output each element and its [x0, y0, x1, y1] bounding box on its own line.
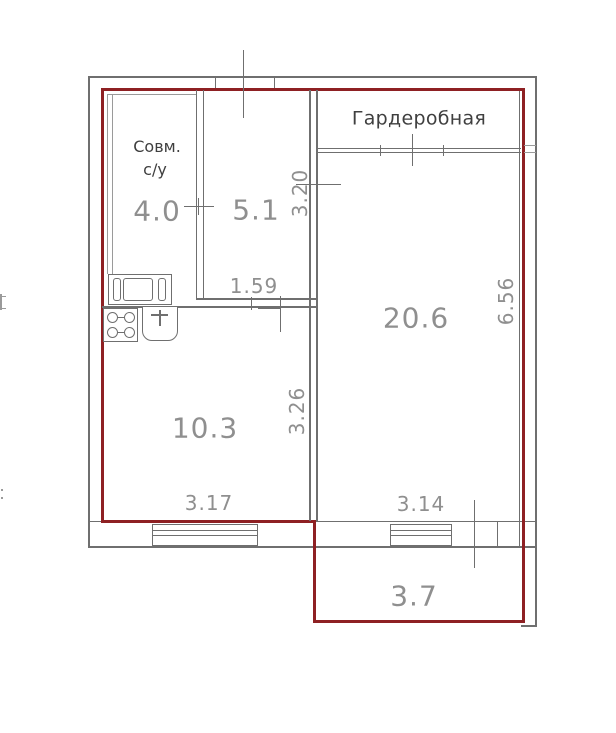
stove-burner — [107, 327, 118, 338]
boundary-bottom-left — [101, 520, 316, 523]
kitchen-door-leaf — [280, 296, 281, 332]
axis-line-wardrobe — [412, 134, 413, 166]
room-area-bathroom: 4.0 — [133, 197, 181, 228]
stove-burner — [124, 327, 135, 338]
wardrobe-label: Гардеробная — [352, 109, 486, 130]
wall-top-outer — [88, 76, 537, 78]
dimension-kitchen-depth: 3.26 — [286, 387, 308, 436]
edge-artifact — [1, 497, 3, 499]
room-area-kitchen: 10.3 — [172, 414, 238, 445]
wall-bathroom-right-a — [196, 90, 197, 300]
window-glazing — [390, 535, 452, 536]
boundary-balcony-left — [313, 520, 316, 623]
window-glazing — [152, 535, 258, 536]
wall-bathroom-right-b — [203, 90, 204, 300]
edge-artifact — [0, 308, 6, 309]
bathtub-end-right — [158, 278, 166, 301]
sink-faucet-bar — [151, 314, 168, 316]
boundary-top — [101, 88, 525, 91]
boundary-right — [522, 88, 525, 623]
wall-bottom-right-cap — [521, 625, 537, 627]
wardrobe-partition-b — [316, 152, 521, 153]
dimension-tick — [184, 206, 214, 207]
dimension-tick — [380, 145, 381, 156]
floor-plan: Гардеробная Совм. с/у 4.0 5.1 20.6 10.3 … — [0, 0, 616, 733]
wall-kitchen-top-a — [196, 298, 317, 300]
window-glazing — [390, 530, 452, 531]
room-area-hall: 5.1 — [232, 196, 280, 227]
dimension-living-room-width: 3.14 — [397, 493, 446, 515]
room-area-living-room: 20.6 — [383, 304, 449, 335]
axis-line-entrance — [243, 50, 244, 118]
dimension-tick — [251, 297, 252, 310]
balcony-door-jamb — [519, 521, 520, 547]
bathtub-basin — [123, 278, 153, 301]
bathroom-label-line2: с/у — [143, 161, 167, 179]
wardrobe-partition-a — [316, 148, 521, 149]
wall-left-outer — [88, 76, 90, 548]
dimension-hall-depth: 3.20 — [289, 169, 311, 218]
bathroom-lining-top — [107, 94, 196, 95]
bathroom-lining-left-a — [107, 94, 108, 274]
dimension-tick — [258, 308, 280, 309]
bathtub-end-left — [113, 278, 121, 301]
room-area-balcony: 3.7 — [390, 582, 438, 613]
stove-burner — [124, 312, 135, 323]
stove-burner — [107, 312, 118, 323]
dimension-kitchen-width: 3.17 — [185, 492, 234, 514]
bathroom-label-line1: Совм. — [133, 138, 181, 156]
partition-stub — [524, 152, 536, 153]
boundary-balcony-bottom — [313, 620, 525, 623]
axis-line-balcony-door — [474, 500, 475, 568]
partition-stub — [524, 145, 536, 146]
wall-right-inner — [519, 90, 520, 522]
bathroom-lining-left-b — [112, 94, 113, 274]
wall-right-outer — [535, 76, 537, 627]
window-glazing — [152, 530, 258, 531]
dimension-tick — [443, 145, 444, 156]
sink-faucet-stem — [159, 310, 161, 326]
dimension-tick — [198, 198, 199, 215]
balcony-door-jamb — [497, 521, 498, 547]
edge-artifact — [1, 489, 3, 491]
edge-artifact — [0, 296, 6, 297]
dimension-hall-width: 1.59 — [230, 275, 279, 297]
dimension-living-room-depth: 6.56 — [495, 277, 517, 326]
